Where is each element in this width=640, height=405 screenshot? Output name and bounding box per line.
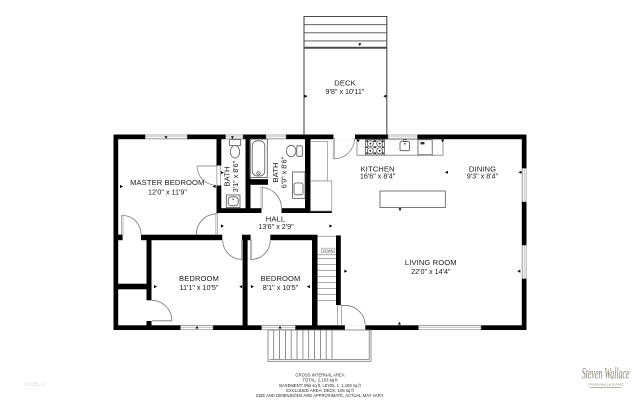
- svg-text:3'1" x 8'6": 3'1" x 8'6": [231, 160, 240, 192]
- svg-text:LEVEL 1: LEVEL 1: [24, 382, 44, 388]
- svg-text:13'6" x 2'9": 13'6" x 2'9": [258, 222, 294, 231]
- svg-text:MASTER BEDROOM: MASTER BEDROOM: [130, 178, 204, 187]
- svg-text:8'1" x 10'5": 8'1" x 10'5": [263, 283, 299, 292]
- svg-text:BEDROOM: BEDROOM: [179, 274, 219, 283]
- svg-text:22'0" x 14'4": 22'0" x 14'4": [411, 267, 451, 276]
- svg-text:DOWN: DOWN: [323, 249, 334, 253]
- svg-text:11'1" x 10'5": 11'1" x 10'5": [180, 283, 219, 292]
- svg-text:LIVING ROOM: LIVING ROOM: [405, 258, 457, 267]
- svg-text:BEDROOM: BEDROOM: [261, 274, 301, 283]
- svg-text:12'0" x 11'9": 12'0" x 11'9": [148, 187, 187, 196]
- svg-text:16'6" x 8'4": 16'6" x 8'4": [360, 172, 396, 181]
- svg-text:9'8" x 10'11": 9'8" x 10'11": [326, 87, 365, 96]
- svg-text:6'9" x 8'6": 6'9" x 8'6": [280, 156, 289, 188]
- svg-text:9'3" x 8'4": 9'3" x 8'4": [467, 172, 499, 181]
- svg-text:STEVEN WALLACE PREC: STEVEN WALLACE PREC: [587, 383, 623, 387]
- svg-text:Steven Wallace: Steven Wallace: [582, 364, 630, 382]
- svg-text:SIZE AND DIMENSIONS ARE APPROX: SIZE AND DIMENSIONS ARE APPROXIMATE, ACT…: [256, 393, 384, 398]
